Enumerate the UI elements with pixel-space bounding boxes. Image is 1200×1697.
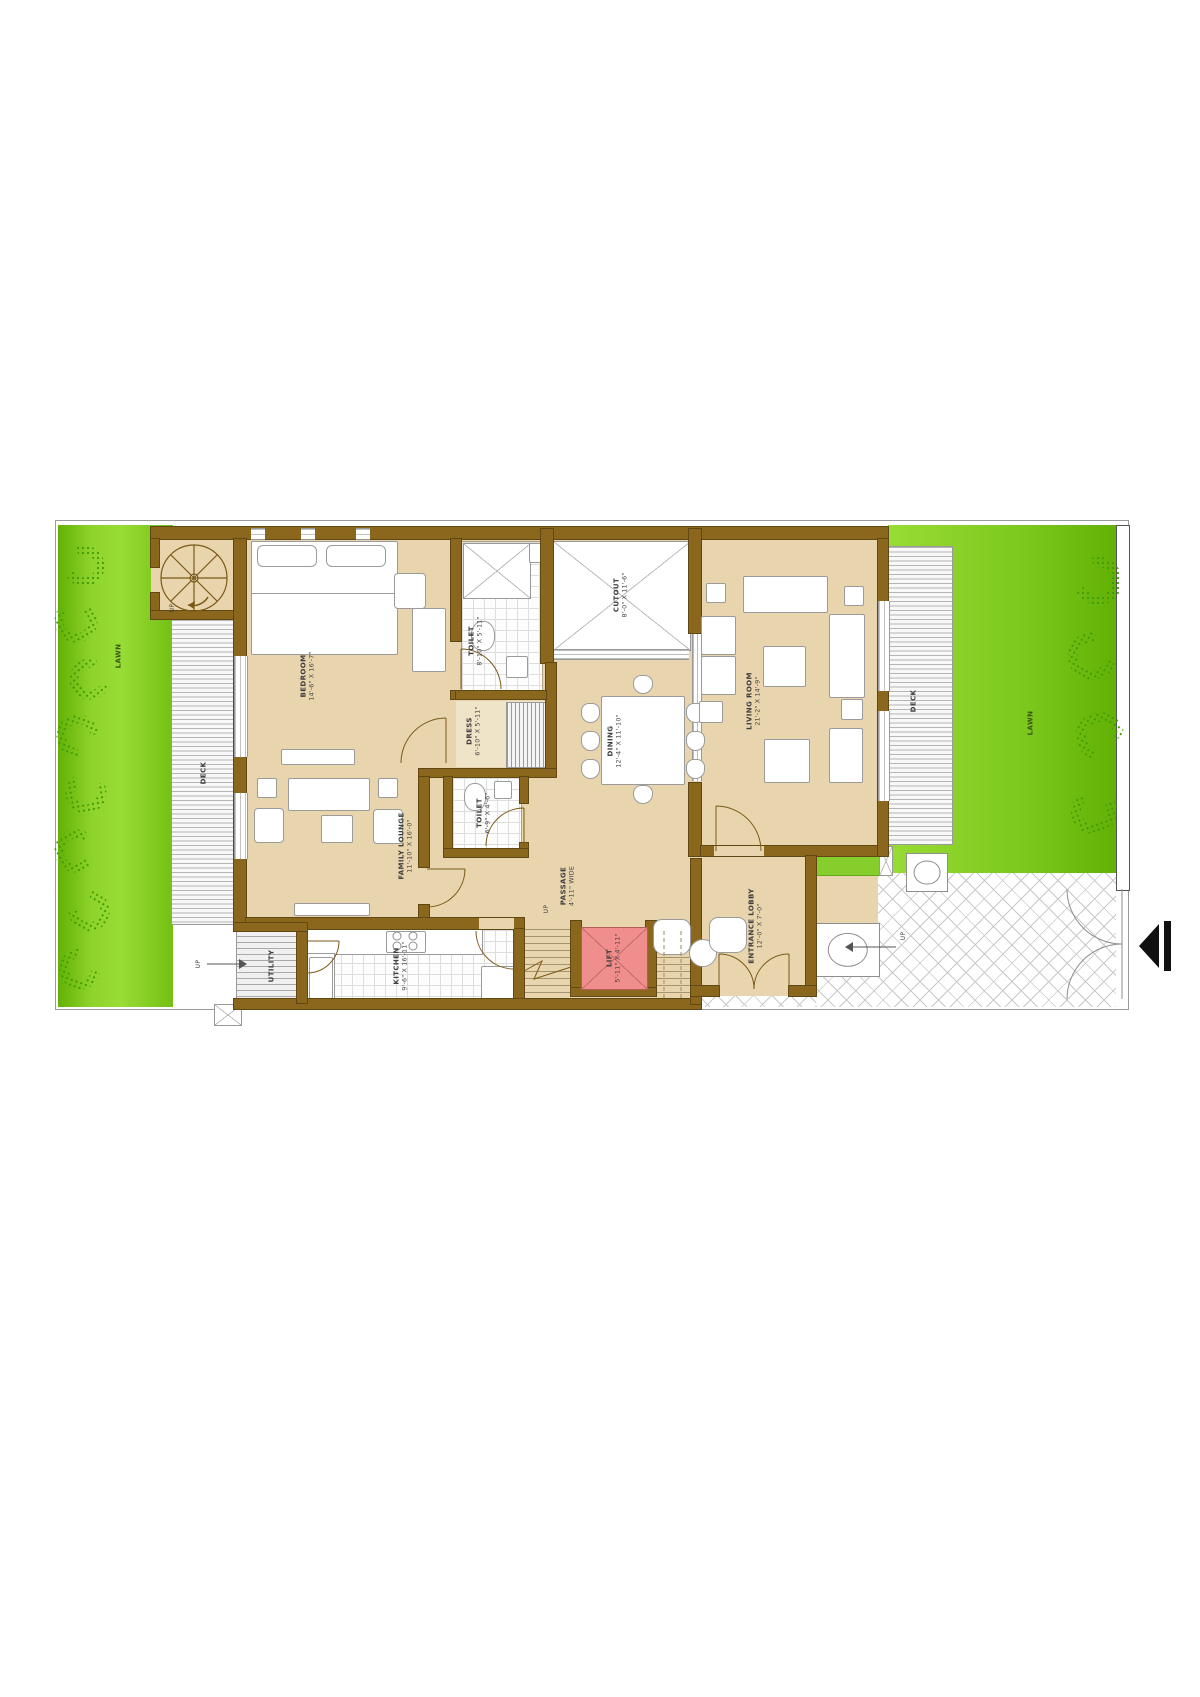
coffee-table (763, 646, 806, 687)
armchair (373, 809, 403, 844)
sofa-single (701, 616, 736, 655)
armchair (254, 808, 284, 843)
dining-chair (581, 759, 600, 779)
cutout-void (553, 541, 691, 651)
lamp-table (844, 586, 864, 606)
pillow (257, 545, 317, 567)
side-table (699, 701, 723, 723)
lamp-table (378, 778, 398, 798)
wall (451, 539, 461, 641)
deck-right (888, 546, 953, 845)
basin (506, 656, 528, 678)
wall (419, 777, 429, 867)
wall (151, 539, 159, 567)
bench (281, 749, 355, 765)
dining-chair (581, 703, 600, 723)
wall (691, 986, 719, 996)
spiral-stair-floor (151, 539, 233, 619)
wall (419, 769, 556, 777)
kitchen-sink (309, 957, 333, 999)
wall (689, 529, 701, 633)
dresser (412, 608, 446, 672)
wall (514, 929, 524, 1001)
window (251, 528, 265, 540)
dining-chair (633, 675, 653, 694)
sliding-door (234, 793, 248, 859)
sliding-door (878, 601, 890, 691)
dining-chair (633, 785, 653, 804)
hob (386, 931, 426, 953)
side-yard (173, 926, 236, 1009)
wc (471, 621, 495, 651)
wall (541, 529, 553, 663)
tv-console (294, 903, 370, 916)
deck-left (171, 619, 236, 925)
wardrobe (506, 702, 548, 768)
wall (419, 905, 429, 918)
utility-steps (236, 929, 299, 1006)
sofa-three-seat (743, 576, 828, 613)
sofa-two-seat (829, 728, 863, 783)
shower (463, 543, 531, 599)
wall (571, 921, 581, 996)
wall (689, 783, 701, 856)
sofa-three-seat (288, 778, 370, 811)
sliding-door (234, 656, 248, 757)
stair-flight-left (524, 929, 571, 1001)
sofa-single (701, 656, 736, 695)
wall (806, 856, 816, 989)
door-opening (714, 846, 764, 856)
lift-shaft (581, 927, 648, 990)
lounge-chair (709, 917, 747, 953)
porch-column (816, 923, 880, 977)
lamp-table (257, 778, 277, 798)
porch-column (906, 853, 948, 892)
dining-chair (686, 759, 705, 779)
sliding-door (878, 711, 890, 801)
side-table (841, 699, 863, 720)
wall (297, 923, 307, 1003)
coffee-table (321, 815, 353, 843)
wall (691, 859, 701, 1004)
wall (151, 611, 233, 619)
planter-strip (816, 856, 883, 876)
wall (234, 923, 307, 931)
wall (789, 986, 816, 996)
cutout-railing (553, 649, 689, 660)
wall (444, 849, 528, 857)
door-opening (479, 918, 514, 929)
basin (494, 781, 512, 799)
table (764, 739, 810, 783)
dining-chair (581, 731, 600, 751)
lamp-table (706, 583, 726, 603)
window (301, 528, 315, 540)
driveway-strip (691, 996, 816, 1007)
refrigerator (481, 966, 516, 1001)
wall (456, 691, 546, 699)
lounge-chair (653, 919, 691, 955)
wc (464, 783, 486, 811)
wall (520, 777, 528, 803)
wall (878, 539, 888, 856)
dining-chair (686, 731, 705, 751)
pillow (326, 545, 386, 567)
wall (444, 777, 452, 857)
armchair (394, 573, 426, 609)
floor-plan-page: LAWN LAWN DECK DECK BEDROOM14'-6" X 16'-… (0, 0, 1200, 1697)
wall (546, 663, 556, 777)
blanket-line (252, 593, 395, 594)
floor-plan: LAWN LAWN DECK DECK BEDROOM14'-6" X 16'-… (55, 520, 1129, 1010)
dining-table (601, 696, 685, 785)
window (356, 528, 370, 540)
entry-arrow (1139, 921, 1171, 971)
boundary-wall-right (1116, 525, 1130, 891)
sofa-two-seat (829, 614, 865, 698)
